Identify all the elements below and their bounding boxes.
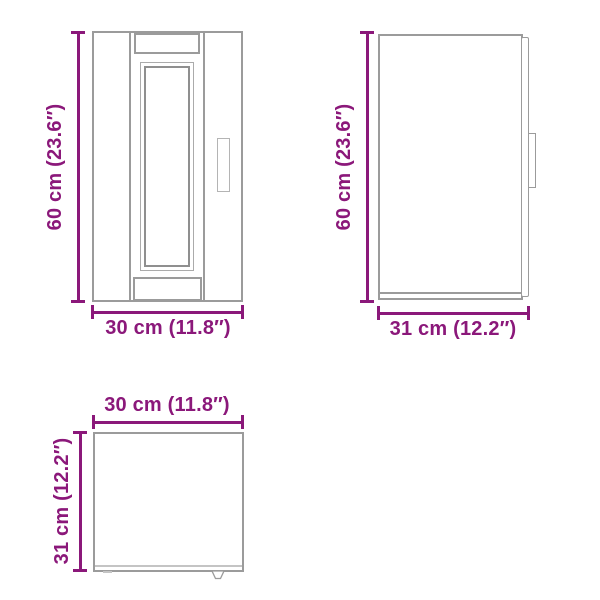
front-door-handle: [217, 138, 230, 192]
top-width-dimension-cap-left: [92, 415, 95, 429]
side-door-handle: [528, 133, 536, 188]
front-bottom-rail: [133, 277, 202, 301]
front-left-stile-line: [129, 33, 131, 300]
front-height-dimension-cap-top: [71, 31, 85, 34]
top-depth-dimension-line: [79, 432, 82, 571]
front-top-rail: [134, 33, 200, 54]
top-width-dimension-line: [93, 421, 243, 424]
front-height-dimension-label: 60 cm (23.6″): [42, 82, 68, 252]
front-right-stile-line: [203, 33, 205, 300]
front-height-dimension-cap-bottom: [71, 300, 85, 303]
side-depth-dimension-label: 31 cm (12.2″): [368, 316, 538, 342]
front-height-dimension-line: [77, 32, 80, 302]
top-front-edge-line: [95, 565, 242, 567]
top-depth-dimension-cap-top: [73, 431, 87, 434]
side-height-dimension-cap-top: [360, 31, 374, 34]
side-height-dimension-label: 60 cm (23.6″): [331, 82, 357, 252]
top-width-dimension-cap-right: [241, 415, 244, 429]
front-width-dimension-label: 30 cm (11.8″): [83, 315, 253, 341]
side-bottom-panel-line: [380, 292, 521, 294]
top-hinge-mark: [103, 571, 112, 573]
side-depth-dimension-line: [378, 312, 529, 315]
front-width-dimension-line: [92, 311, 243, 314]
dimension-diagram: 60 cm (23.6″) 30 cm (11.8″) 60 cm (23.6″…: [0, 0, 600, 600]
side-height-dimension-cap-bottom: [360, 300, 374, 303]
top-depth-dimension-cap-bottom: [73, 569, 87, 572]
top-cabinet-outline: [93, 432, 244, 572]
front-door-panel-inner: [144, 66, 190, 267]
top-width-dimension-label: 30 cm (11.8″): [82, 392, 252, 418]
side-cabinet-outline: [378, 34, 523, 300]
top-latch-notch: [210, 570, 226, 580]
top-depth-dimension-label: 31 cm (12.2″): [49, 416, 75, 586]
side-height-dimension-line: [366, 32, 369, 302]
